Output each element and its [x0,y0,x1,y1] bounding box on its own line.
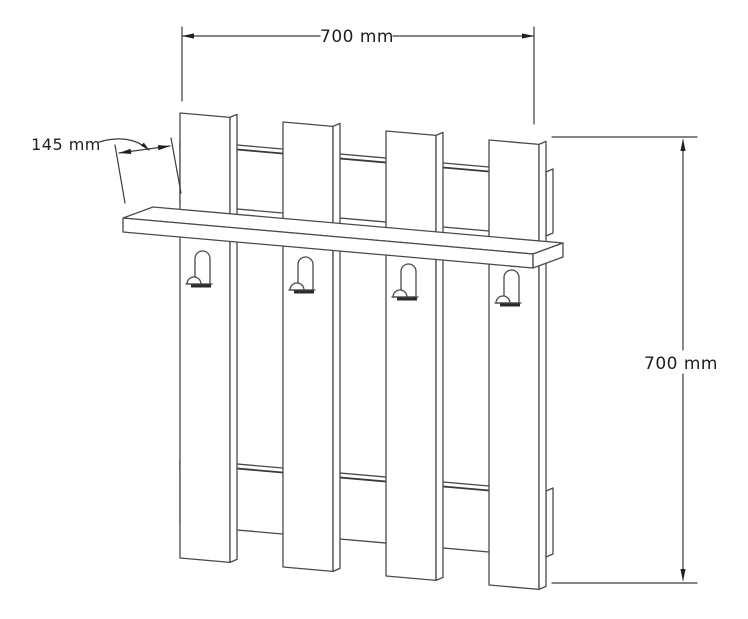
width-dim-arrow-left-icon [182,33,194,38]
height-dimension: 700 mm [552,137,718,583]
slat-1-side-face [230,114,237,562]
width-dimension: 700 mm [182,27,534,124]
depth-dim-extension-front [115,145,125,203]
width-dimension-label: 700 mm [320,27,394,47]
drawing-canvas: 700 mm 145 mm 700 mm [0,0,748,619]
slat-3 [386,131,443,580]
height-dim-arrow-top-icon [680,139,685,151]
height-dim-arrow-bottom-icon [680,569,685,581]
upper-rail-end-face [546,169,553,236]
slat-4-front-face [489,140,539,589]
depth-dimension: 145 mm [31,135,181,203]
slat-2 [283,122,340,571]
depth-dim-arrow-right-icon [158,145,170,150]
coat-rack-technical-drawing: 700 mm 145 mm 700 mm [0,0,748,619]
slat-1-front-face [180,113,230,562]
slat-3-side-face [436,132,443,580]
slat-1 [180,113,237,562]
slat-2-side-face [333,123,340,571]
slat-2-front-face [283,122,333,571]
lower-rail-end-face [546,488,553,557]
depth-dim-leader-line [99,139,149,150]
width-dim-arrow-right-icon [522,33,534,38]
depth-dimension-label: 145 mm [31,135,101,154]
height-dimension-label: 700 mm [644,354,718,374]
slat-4-side-face [539,141,546,589]
slat-3-front-face [386,131,436,580]
slat-4 [489,140,546,589]
